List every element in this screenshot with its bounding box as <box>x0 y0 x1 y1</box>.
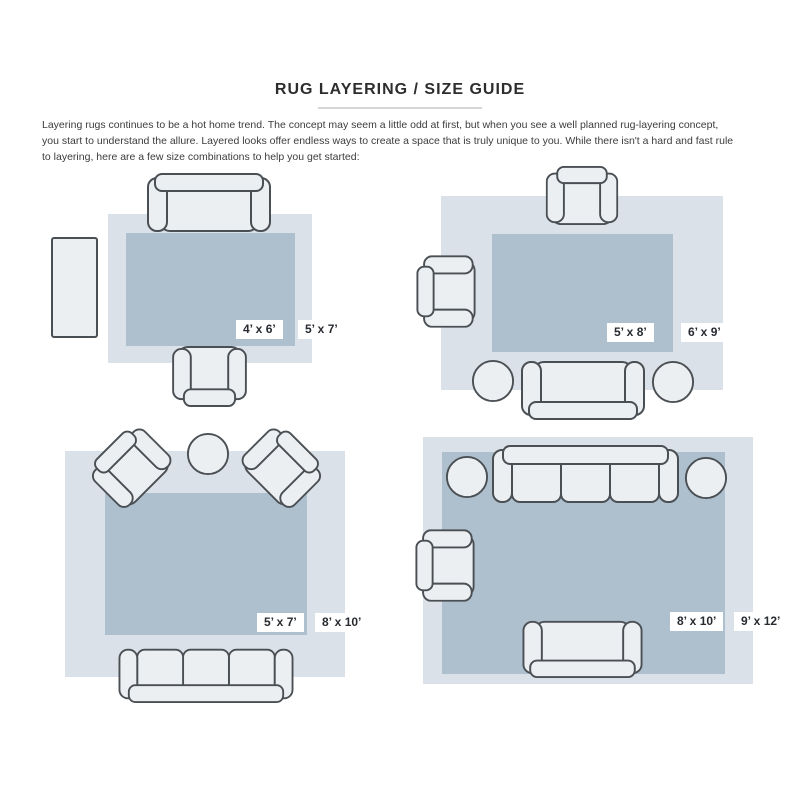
intro-line: you start to understand the allure. Laye… <box>42 133 782 149</box>
three-seat-sofa-icon <box>492 445 679 507</box>
intro-line: to layering, here are a few size combina… <box>42 149 782 165</box>
intro-paragraph: Layering rugs continues to be a hot home… <box>42 117 782 165</box>
armchair-icon <box>415 529 476 603</box>
armchair-icon <box>416 255 477 329</box>
round-pouf-icon <box>445 455 489 499</box>
inner-rug-size-label: 8’ x 10’ <box>670 612 723 631</box>
loveseat-sofa-icon <box>518 357 648 420</box>
rug-size-guide-page: RUG LAYERING / SIZE GUIDE Layering rugs … <box>0 0 800 800</box>
armchair-icon <box>545 165 619 226</box>
title-divider <box>318 107 482 109</box>
outer-rug-size-label: 9’ x 12’ <box>734 612 787 631</box>
page-title: RUG LAYERING / SIZE GUIDE <box>0 81 800 99</box>
three-seat-sofa-icon <box>110 645 302 703</box>
loveseat-sofa-icon <box>520 617 645 678</box>
side-table-icon <box>51 237 98 338</box>
outer-rug-size-label: 6’ x 9’ <box>681 323 728 342</box>
round-pouf-icon <box>471 359 515 403</box>
inner-rug-size-label: 5’ x 8’ <box>607 323 654 342</box>
outer-rug-size-label: 8’ x 10’ <box>315 613 368 632</box>
armchair-icon <box>172 345 247 408</box>
round-table-icon <box>186 432 230 476</box>
inner-rug-size-label: 4’ x 6’ <box>236 320 283 339</box>
loveseat-sofa-icon <box>147 173 271 236</box>
round-pouf-icon <box>684 456 728 500</box>
round-pouf-icon <box>651 360 695 404</box>
inner-rug-size-label: 5’ x 7’ <box>257 613 304 632</box>
intro-line: Layering rugs continues to be a hot home… <box>42 117 782 133</box>
outer-rug-size-label: 5’ x 7’ <box>298 320 345 339</box>
